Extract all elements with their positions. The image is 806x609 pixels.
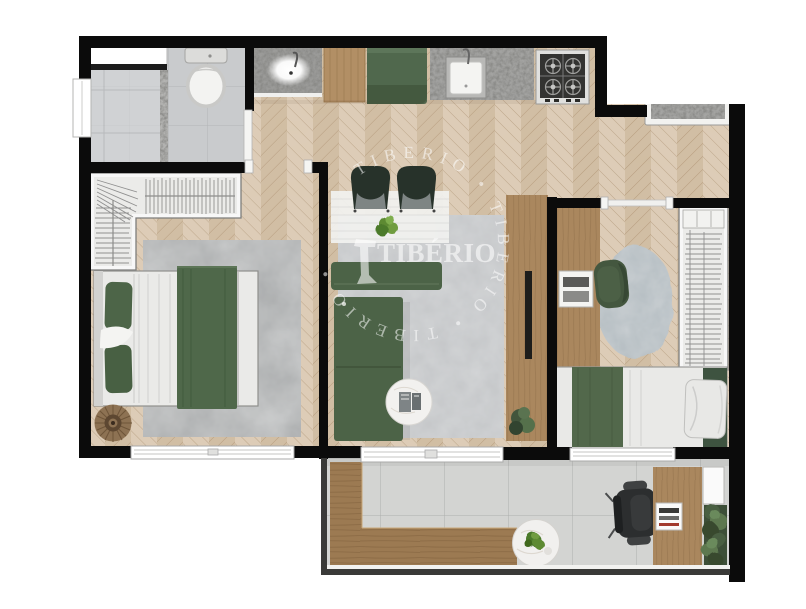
svg-text:TIBÉRIO: TIBÉRIO — [377, 238, 496, 268]
